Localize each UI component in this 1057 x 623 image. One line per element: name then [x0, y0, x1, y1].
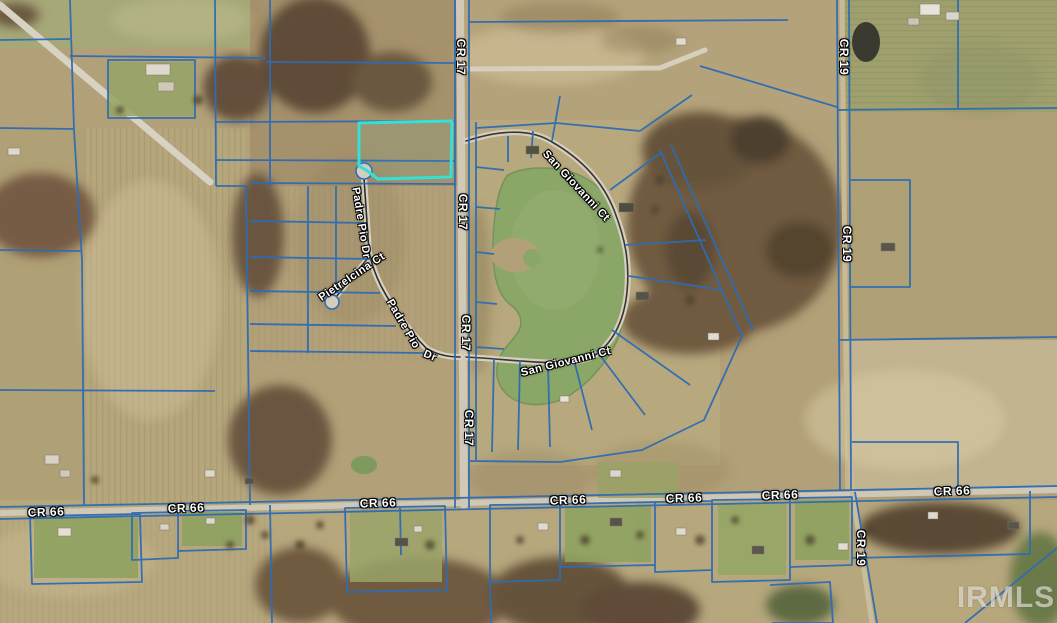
- aerial-map-graphic: [0, 0, 1057, 623]
- highlighted-parcel[interactable]: [359, 121, 452, 179]
- map-canvas[interactable]: CR 17 CR 17 CR 17 CR 17 CR 19 CR 19 CR 1…: [0, 0, 1057, 623]
